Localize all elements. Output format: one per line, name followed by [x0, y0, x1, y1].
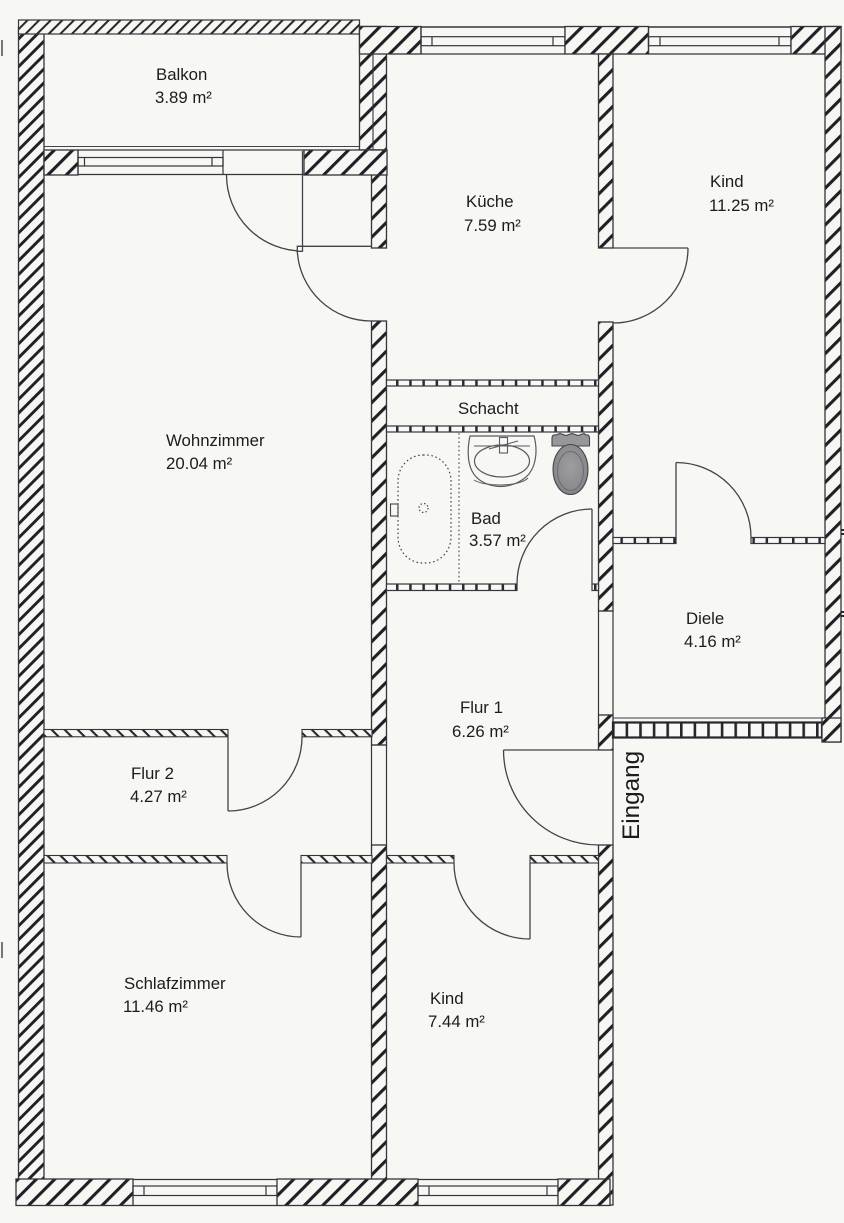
svg-text:4.27 m²: 4.27 m² [130, 787, 187, 806]
svg-text:7.59 m²: 7.59 m² [464, 216, 521, 235]
svg-text:11.25 m²: 11.25 m² [709, 196, 774, 215]
svg-text:Schacht: Schacht [458, 399, 519, 418]
svg-text:Diele: Diele [686, 609, 724, 628]
svg-text:Kind: Kind [710, 172, 744, 191]
svg-text:3.89 m²: 3.89 m² [155, 88, 212, 107]
svg-text:20.04 m²: 20.04 m² [166, 454, 233, 473]
svg-text:11.46 m²: 11.46 m² [123, 997, 188, 1016]
svg-text:Flur 1: Flur 1 [460, 698, 503, 717]
svg-text:Bad: Bad [471, 509, 501, 528]
svg-text:Flur 2: Flur 2 [131, 764, 174, 783]
svg-text:Wohnzimmer: Wohnzimmer [166, 431, 265, 450]
svg-text:Kind: Kind [430, 989, 464, 1008]
svg-text:4.16 m²: 4.16 m² [684, 632, 741, 651]
svg-text:Eingang: Eingang [618, 751, 645, 840]
svg-text:Schlafzimmer: Schlafzimmer [124, 974, 226, 993]
svg-text:7.44 m²: 7.44 m² [428, 1012, 485, 1031]
svg-text:3.57 m²: 3.57 m² [469, 531, 526, 550]
svg-text:6.26 m²: 6.26 m² [452, 722, 509, 741]
svg-text:Balkon: Balkon [156, 65, 207, 84]
svg-text:Küche: Küche [466, 192, 514, 211]
